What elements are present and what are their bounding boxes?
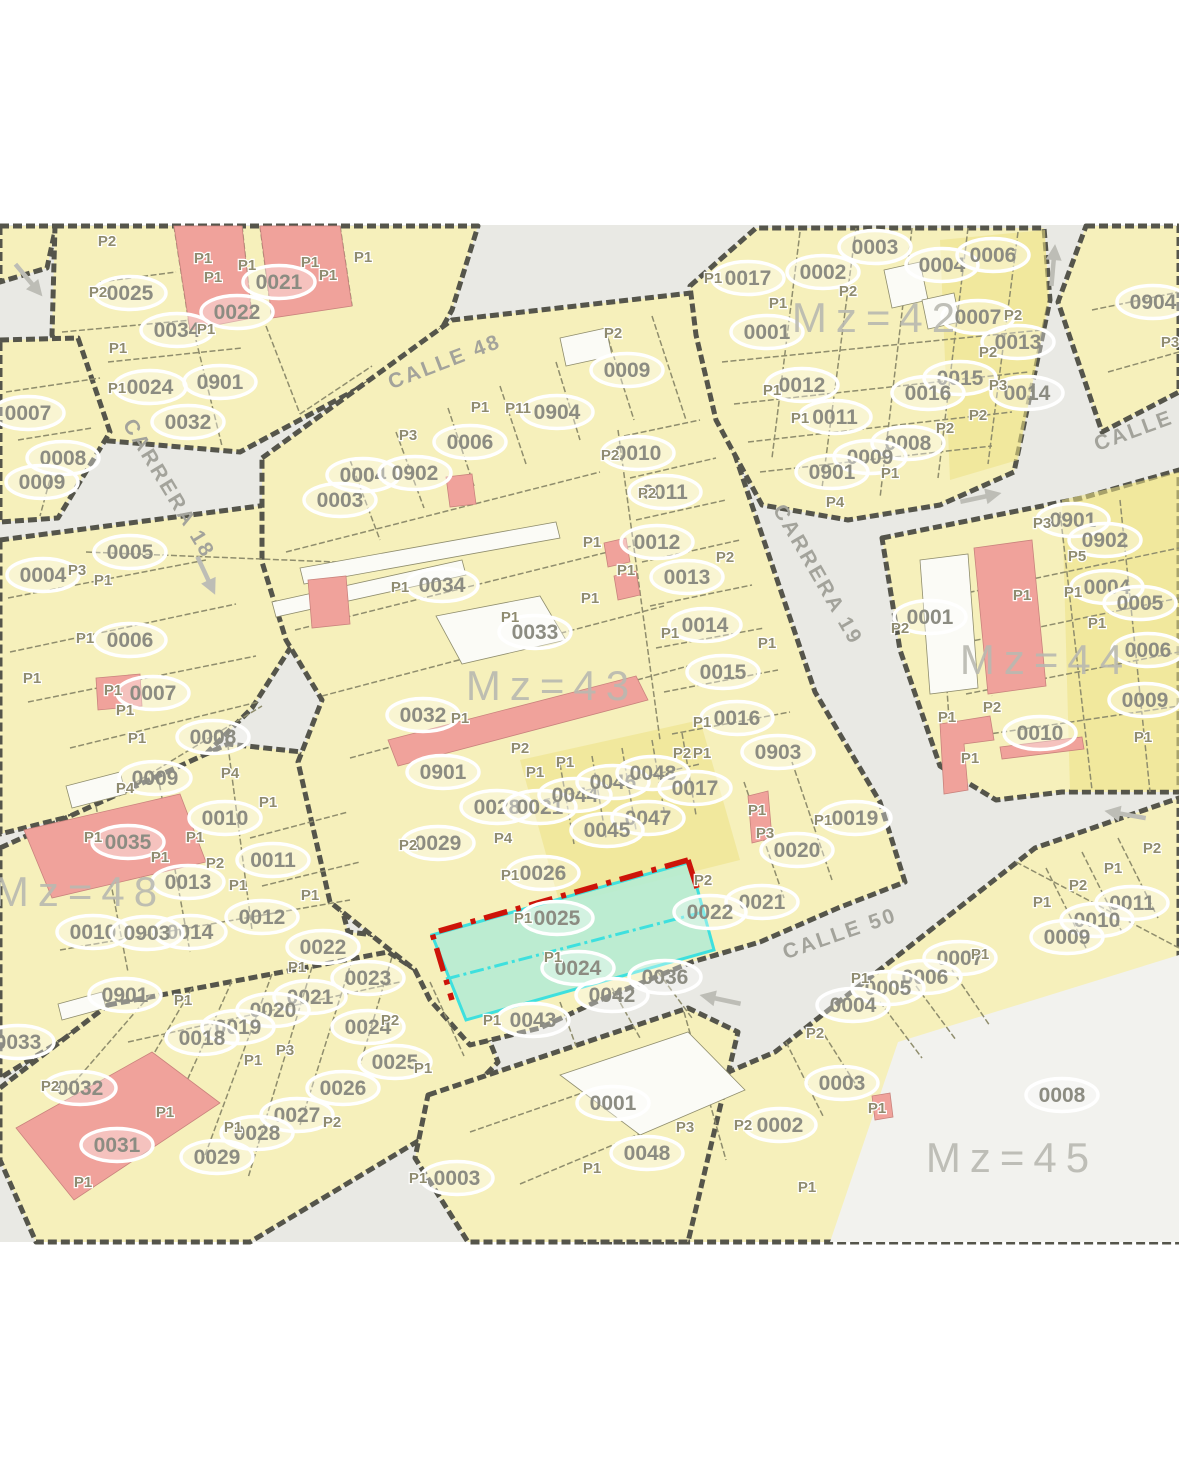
svg-text:0013: 0013 [995, 331, 1042, 354]
floors-label: P1 [514, 910, 532, 927]
svg-text:0026: 0026 [520, 862, 567, 885]
floors-label: P1 [238, 257, 256, 274]
svg-text:0011: 0011 [812, 406, 858, 429]
floors-label: P1 [763, 382, 781, 399]
parcel-label-0003[interactable]: 0003 [839, 231, 911, 264]
svg-text:0023: 0023 [345, 967, 392, 990]
floors-label: P5 [1068, 548, 1086, 565]
floors-label: P1 [501, 609, 519, 626]
svg-text:0001: 0001 [744, 321, 791, 344]
parcel-label-0033[interactable]: 0033 [0, 1026, 54, 1059]
svg-text:0009: 0009 [132, 767, 179, 790]
floors-label: P1 [194, 250, 212, 267]
floors-label: P1 [354, 249, 372, 266]
floors-label: P1 [617, 562, 635, 579]
parcel-label-0013[interactable]: 0013 [651, 561, 723, 594]
parcel-label-0048[interactable]: 0048 [611, 1137, 683, 1170]
floors-label: P1 [526, 764, 544, 781]
svg-text:0032: 0032 [57, 1077, 104, 1100]
floors-label: P1 [74, 1174, 92, 1191]
floors-label: P3 [1033, 515, 1051, 532]
floors-label: P2 [969, 407, 987, 424]
svg-text:0031: 0031 [94, 1134, 141, 1157]
floors-label: P4 [494, 830, 513, 847]
svg-text:0009: 0009 [19, 471, 66, 494]
floors-label: P1 [23, 670, 41, 687]
floors-label: P1 [748, 802, 766, 819]
floors-label: P1 [583, 534, 601, 551]
svg-text:0003: 0003 [819, 1072, 866, 1095]
parcel-label-0032[interactable]: 0032 [152, 406, 224, 439]
parcel-label-0901[interactable]: 0901 [184, 366, 256, 399]
svg-text:0011: 0011 [250, 849, 296, 872]
svg-text:0010: 0010 [1017, 722, 1064, 745]
floors-label: P4 [826, 494, 845, 511]
floors-label: P2 [89, 284, 107, 301]
svg-text:0019: 0019 [832, 807, 879, 830]
parcel-label-0015[interactable]: 0015 [687, 656, 759, 689]
floors-label: P1 [704, 270, 722, 287]
floors-label: P1 [583, 1160, 601, 1177]
parcel-label-0016[interactable]: 0016 [892, 377, 964, 410]
floors-label: P1 [197, 321, 215, 338]
floors-label: P1 [104, 682, 122, 699]
parcel-label-0022[interactable]: 0022 [674, 896, 746, 929]
floors-label: P1 [769, 295, 787, 312]
floors-label: P2 [1143, 840, 1161, 857]
parcel-label-0009[interactable]: 0009 [1031, 921, 1103, 954]
svg-text:0029: 0029 [415, 832, 462, 855]
svg-text:0022: 0022 [300, 936, 347, 959]
parcel-label-0003[interactable]: 0003 [421, 1162, 493, 1195]
floors-label: P2 [694, 872, 712, 889]
svg-text:0008: 0008 [190, 726, 237, 749]
floors-label: P1 [1134, 729, 1152, 746]
parcel-label-0004[interactable]: 0004 [817, 989, 889, 1022]
floors-label: P1 [1013, 587, 1031, 604]
parcel-label-0901[interactable]: 0901 [407, 756, 479, 789]
floors-label: P2 [638, 485, 656, 502]
floors-label: P2 [381, 1012, 399, 1029]
parcel-label-0008[interactable]: 0008 [1026, 1079, 1098, 1112]
svg-text:0003: 0003 [852, 236, 899, 259]
floors-label: P3 [989, 377, 1007, 394]
parcel-label-0014[interactable]: 0014 [669, 609, 741, 642]
floors-label: P1 [288, 959, 306, 976]
svg-text:0045: 0045 [584, 819, 631, 842]
floors-label: P2 [511, 740, 529, 757]
floors-label: P3 [1161, 334, 1179, 351]
svg-text:0010: 0010 [202, 807, 249, 830]
svg-text:0034: 0034 [154, 319, 201, 342]
floors-label: P1 [868, 1100, 886, 1117]
block-label: Mz=48 [0, 868, 166, 915]
floors-label: P1 [1104, 860, 1122, 877]
floors-label: P1 [471, 399, 489, 416]
cadastral-map[interactable]: 0025002100220034002409010032000700080009… [0, 0, 1179, 1467]
svg-text:0026: 0026 [320, 1077, 367, 1100]
floors-label: P1 [204, 269, 222, 286]
parcel-label-0901[interactable]: 0901 [89, 979, 161, 1012]
parcel-label-0902[interactable]: 0902 [379, 457, 451, 490]
floors-label: P1 [414, 1060, 432, 1077]
parcel-label-0005[interactable]: 0005 [1104, 587, 1176, 620]
svg-text:0012: 0012 [634, 531, 681, 554]
block-label: Mz=44 [960, 636, 1132, 683]
floors-label: P1 [156, 1104, 174, 1121]
floors-label: P1 [661, 625, 679, 642]
svg-text:0901: 0901 [420, 761, 467, 784]
parcel-label-0903[interactable]: 0903 [111, 917, 183, 950]
floors-label: P3 [399, 427, 417, 444]
parcel-label-0029[interactable]: 0029 [181, 1141, 253, 1174]
parcel-label-0009[interactable]: 0009 [1109, 684, 1179, 717]
svg-text:0904: 0904 [1130, 291, 1177, 314]
parcel-label-0006[interactable]: 0006 [957, 239, 1029, 272]
floors-label: P1 [501, 867, 519, 884]
floors-label: P2 [734, 1117, 752, 1134]
svg-text:0017: 0017 [672, 777, 719, 800]
parcel-label-0012[interactable]: 0012 [621, 526, 693, 559]
floors-label: P4 [221, 765, 240, 782]
floors-label: P2 [891, 620, 909, 637]
parcel-label-0009[interactable]: 0009 [591, 354, 663, 387]
floors-label: P1 [971, 946, 989, 963]
floors-label: P2 [983, 699, 1001, 716]
floors-label: P1 [881, 465, 899, 482]
svg-text:0012: 0012 [239, 906, 286, 929]
svg-text:0902: 0902 [392, 462, 439, 485]
svg-text:0001: 0001 [590, 1092, 637, 1115]
parcel-label-0010[interactable]: 0010 [1004, 717, 1076, 750]
floors-label: P1 [544, 949, 562, 966]
svg-text:0022: 0022 [214, 301, 261, 324]
floors-label: P2 [323, 1114, 341, 1131]
floors-label: P2 [399, 837, 417, 854]
floors-label: P2 [41, 1078, 59, 1095]
parcel-label-0008[interactable]: 0008 [177, 721, 249, 754]
parcel-label-0009[interactable]: 0009 [6, 466, 78, 499]
svg-text:0006: 0006 [107, 629, 154, 652]
svg-text:0024: 0024 [127, 376, 174, 399]
svg-text:0003: 0003 [434, 1167, 481, 1190]
svg-text:0016: 0016 [714, 707, 761, 730]
parcel-label-0005[interactable]: 0005 [94, 536, 166, 569]
svg-text:0901: 0901 [102, 984, 149, 1007]
floors-label: P1 [1033, 894, 1051, 911]
block-label: Mz=45 [926, 1134, 1098, 1181]
map-viewport[interactable]: 0025002100220034002409010032000700080009… [0, 0, 1179, 1467]
floors-label: P1 [581, 590, 599, 607]
building-footprint [308, 576, 350, 628]
svg-text:0032: 0032 [165, 411, 212, 434]
svg-text:0903: 0903 [755, 741, 802, 764]
svg-text:0006: 0006 [447, 431, 494, 454]
svg-text:0903: 0903 [124, 922, 171, 945]
floors-label: P1 [851, 970, 869, 987]
floors-label: P1 [186, 829, 204, 846]
svg-text:0025: 0025 [372, 1051, 419, 1074]
parcel-label-0017[interactable]: 0017 [659, 772, 731, 805]
parcel-label-0001[interactable]: 0001 [577, 1087, 649, 1120]
parcel-label-0007[interactable]: 0007 [0, 397, 64, 430]
parcel-label-0032[interactable]: 0032 [387, 699, 459, 732]
floors-label: P1 [798, 1179, 816, 1196]
floors-label: P1 [151, 849, 169, 866]
svg-text:0013: 0013 [664, 566, 711, 589]
floors-label: P2 [1069, 877, 1087, 894]
parcel-label-0011[interactable]: 0011 [799, 401, 871, 434]
svg-text:0020: 0020 [774, 839, 821, 862]
parcel-label-0003[interactable]: 0003 [806, 1067, 878, 1100]
block-label: Mz=42 [792, 294, 964, 341]
svg-text:0002: 0002 [757, 1114, 804, 1137]
floors-label: P1 [76, 630, 94, 647]
svg-text:0048: 0048 [624, 1142, 671, 1165]
floors-label: P1 [451, 710, 469, 727]
floors-label: P1 [391, 579, 409, 596]
floors-label: P3 [68, 562, 86, 579]
floors-label: P1 [259, 794, 277, 811]
floors-label: P3 [676, 1119, 694, 1136]
floors-label: P1 [938, 709, 956, 726]
svg-text:0016: 0016 [905, 382, 952, 405]
parcel-label-0026[interactable]: 0026 [307, 1072, 379, 1105]
floors-label: P1 [758, 635, 776, 652]
svg-text:0002: 0002 [800, 261, 847, 284]
svg-text:0014: 0014 [1004, 382, 1051, 405]
parcel-label-0016[interactable]: 0016 [701, 702, 773, 735]
svg-text:0005: 0005 [107, 541, 154, 564]
svg-text:0015: 0015 [700, 661, 747, 684]
floors-label: P2 [936, 420, 954, 437]
floors-label: P1 [84, 829, 102, 846]
floors-label: P2 [206, 855, 224, 872]
parcel-label-0903[interactable]: 0903 [742, 736, 814, 769]
floors-label: P1 [244, 1052, 262, 1069]
svg-text:0034: 0034 [419, 574, 466, 597]
floors-label: P11 [505, 400, 531, 417]
svg-text:0036: 0036 [642, 966, 689, 989]
floors-label: P2 [604, 325, 622, 342]
svg-text:0904: 0904 [534, 401, 581, 424]
svg-text:0014: 0014 [682, 614, 729, 637]
floors-label: P1 [409, 1170, 427, 1187]
parcel-label-0018[interactable]: 0018 [166, 1022, 238, 1055]
parcel-label-0045[interactable]: 0045 [571, 814, 643, 847]
svg-text:0018: 0018 [179, 1027, 226, 1050]
floors-label: P1 [174, 992, 192, 1009]
floors-label: P1 [108, 380, 126, 397]
svg-text:0004: 0004 [20, 564, 67, 587]
svg-text:0008: 0008 [1039, 1084, 1086, 1107]
svg-text:0025: 0025 [107, 282, 154, 305]
svg-text:0005: 0005 [1117, 592, 1164, 615]
parcel-label-0017[interactable]: 0017 [712, 262, 784, 295]
svg-text:0010: 0010 [615, 442, 662, 465]
block-label: Mz=43 [466, 662, 638, 709]
svg-text:0007: 0007 [130, 682, 177, 705]
parcel-label-0901[interactable]: 0901 [796, 456, 868, 489]
svg-text:0043: 0043 [510, 1009, 557, 1032]
parcel-label-0002[interactable]: 0002 [744, 1109, 816, 1142]
floors-label: P2 [806, 1025, 824, 1042]
floors-label: P1 [224, 1119, 242, 1136]
floors-label: P1 [1088, 615, 1106, 632]
svg-text:0902: 0902 [1082, 529, 1129, 552]
svg-text:0029: 0029 [194, 1146, 241, 1169]
floors-label: P2 [98, 233, 116, 250]
floors-label: P1 [94, 572, 112, 589]
floors-label: P2 [716, 549, 734, 566]
floors-label: P3 [276, 1042, 294, 1059]
floors-label: P1 [961, 750, 979, 767]
floors-label: P1 [1064, 584, 1082, 601]
svg-text:0025: 0025 [534, 907, 581, 930]
parcel-label-0031[interactable]: 0031 [81, 1129, 153, 1162]
svg-text:0017: 0017 [725, 267, 772, 290]
svg-text:0006: 0006 [970, 244, 1017, 267]
parcel-label-0011[interactable]: 0011 [237, 844, 309, 877]
floors-label: P2 [979, 344, 997, 361]
floors-label: P1 [109, 340, 127, 357]
svg-text:0032: 0032 [400, 704, 447, 727]
svg-text:0022: 0022 [687, 901, 734, 924]
floors-label: P1 [483, 1012, 501, 1029]
parcel-label-0006[interactable]: 0006 [94, 624, 166, 657]
parcel-label-0006[interactable]: 0006 [434, 426, 506, 459]
floors-label: P1 [301, 887, 319, 904]
svg-text:0009: 0009 [604, 359, 651, 382]
floors-label: P1 [556, 754, 574, 771]
svg-text:0009: 0009 [1044, 926, 1091, 949]
svg-text:0012: 0012 [779, 374, 826, 397]
floors-label: P2 [673, 745, 691, 762]
svg-text:0013: 0013 [165, 871, 212, 894]
floors-label: P3 [756, 825, 774, 842]
parcel-label-0043[interactable]: 0043 [497, 1004, 569, 1037]
floors-label: P1 [301, 254, 319, 271]
floors-label: P1 [791, 410, 809, 427]
floors-label: P1 [693, 745, 711, 762]
floors-label: P1 [693, 714, 711, 731]
svg-text:0901: 0901 [809, 461, 856, 484]
parcel-label-0904[interactable]: 0904 [1117, 286, 1179, 319]
svg-text:0004: 0004 [830, 994, 877, 1017]
floors-label: P1 [128, 730, 146, 747]
parcel-label-0904[interactable]: 0904 [521, 396, 593, 429]
floors-label: P2 [1004, 307, 1022, 324]
parcel-label-0034[interactable]: 0034 [406, 569, 478, 602]
svg-text:0042: 0042 [589, 984, 636, 1007]
floors-label: P4 [116, 780, 135, 797]
svg-text:0009: 0009 [1122, 689, 1169, 712]
svg-text:0001: 0001 [907, 606, 954, 629]
floors-label: P2 [601, 447, 619, 464]
floors-label: P1 [319, 267, 337, 284]
svg-text:0021: 0021 [256, 271, 303, 294]
floors-label: P1 [814, 812, 832, 829]
floors-label: P1 [229, 877, 247, 894]
floors-label: P1 [116, 702, 134, 719]
parcel-label-0012[interactable]: 0012 [226, 901, 298, 934]
svg-text:0901: 0901 [197, 371, 244, 394]
svg-text:0007: 0007 [5, 402, 52, 425]
svg-text:0035: 0035 [105, 831, 152, 854]
svg-text:0033: 0033 [0, 1031, 41, 1054]
